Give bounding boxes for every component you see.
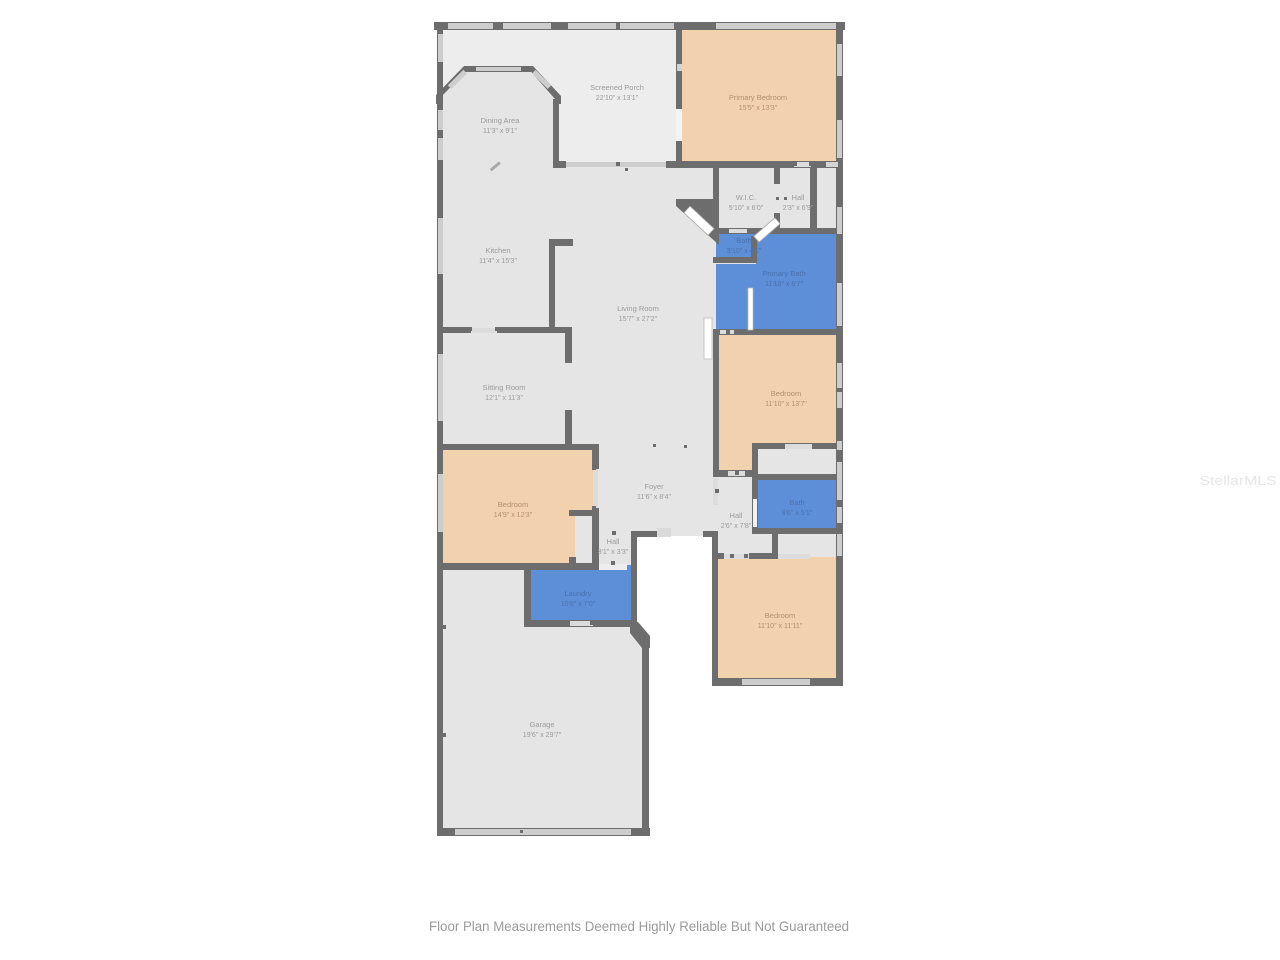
svg-text:22'10" x 13'1": 22'10" x 13'1" [596, 95, 639, 102]
svg-text:Bath: Bath [789, 498, 804, 507]
svg-text:Bedroom: Bedroom [771, 389, 801, 398]
svg-text:Hall: Hall [792, 193, 805, 202]
svg-text:11'10" x 6'7": 11'10" x 6'7" [765, 281, 803, 288]
svg-text:2'3" x 6'9": 2'3" x 6'9" [783, 205, 814, 212]
svg-text:Hall: Hall [607, 537, 620, 546]
svg-text:Kitchen: Kitchen [485, 246, 510, 255]
svg-text:Garage: Garage [529, 720, 554, 729]
svg-text:Bedroom: Bedroom [765, 611, 795, 620]
svg-text:11'10" x 13'7": 11'10" x 13'7" [765, 401, 807, 408]
svg-text:Dining Area: Dining Area [481, 116, 521, 125]
svg-text:14'9" x 12'3": 14'9" x 12'3" [494, 512, 533, 519]
svg-text:Hall: Hall [730, 511, 743, 520]
svg-text:11'4" x 15'3": 11'4" x 15'3" [479, 258, 517, 265]
svg-text:10'8" x 7'0": 10'8" x 7'0" [561, 601, 596, 608]
svg-text:Floor Plan Measurements Deemed: Floor Plan Measurements Deemed Highly Re… [429, 919, 849, 934]
svg-text:Primary Bath: Primary Bath [762, 269, 805, 278]
svg-text:11'10" x 11'11": 11'10" x 11'11" [758, 623, 803, 630]
svg-text:3'10" x 4'1": 3'10" x 4'1" [727, 248, 762, 255]
svg-text:Screened Porch: Screened Porch [590, 83, 644, 92]
svg-text:8'6" x 5'1": 8'6" x 5'1" [782, 510, 813, 517]
svg-text:15'5" x 13'3": 15'5" x 13'3" [739, 105, 778, 112]
svg-text:12'1" x 11'3": 12'1" x 11'3" [485, 395, 523, 402]
svg-text:Foyer: Foyer [644, 482, 664, 491]
svg-text:Bedroom: Bedroom [498, 500, 528, 509]
svg-text:5'10" x 6'0": 5'10" x 6'0" [729, 205, 764, 212]
svg-text:2'6" x 7'8": 2'6" x 7'8" [721, 523, 752, 530]
svg-text:Laundry: Laundry [564, 589, 591, 598]
svg-text:15'7" x 27'2": 15'7" x 27'2" [619, 316, 658, 323]
svg-text:Bath: Bath [736, 236, 751, 245]
svg-text:11'6" x 8'4": 11'6" x 8'4" [637, 494, 671, 501]
svg-text:StellarMLS: StellarMLS [1200, 473, 1277, 488]
svg-text:Primary Bedroom: Primary Bedroom [729, 93, 787, 102]
svg-text:W.I.C.: W.I.C. [736, 193, 756, 202]
svg-text:Living Room: Living Room [617, 304, 659, 313]
svg-text:19'6" x 29'7": 19'6" x 29'7" [523, 732, 562, 739]
svg-text:Sitting Room: Sitting Room [483, 383, 526, 392]
svg-text:3'1" x 3'3": 3'1" x 3'3" [598, 549, 629, 556]
svg-text:11'3" x 9'1": 11'3" x 9'1" [483, 128, 517, 135]
